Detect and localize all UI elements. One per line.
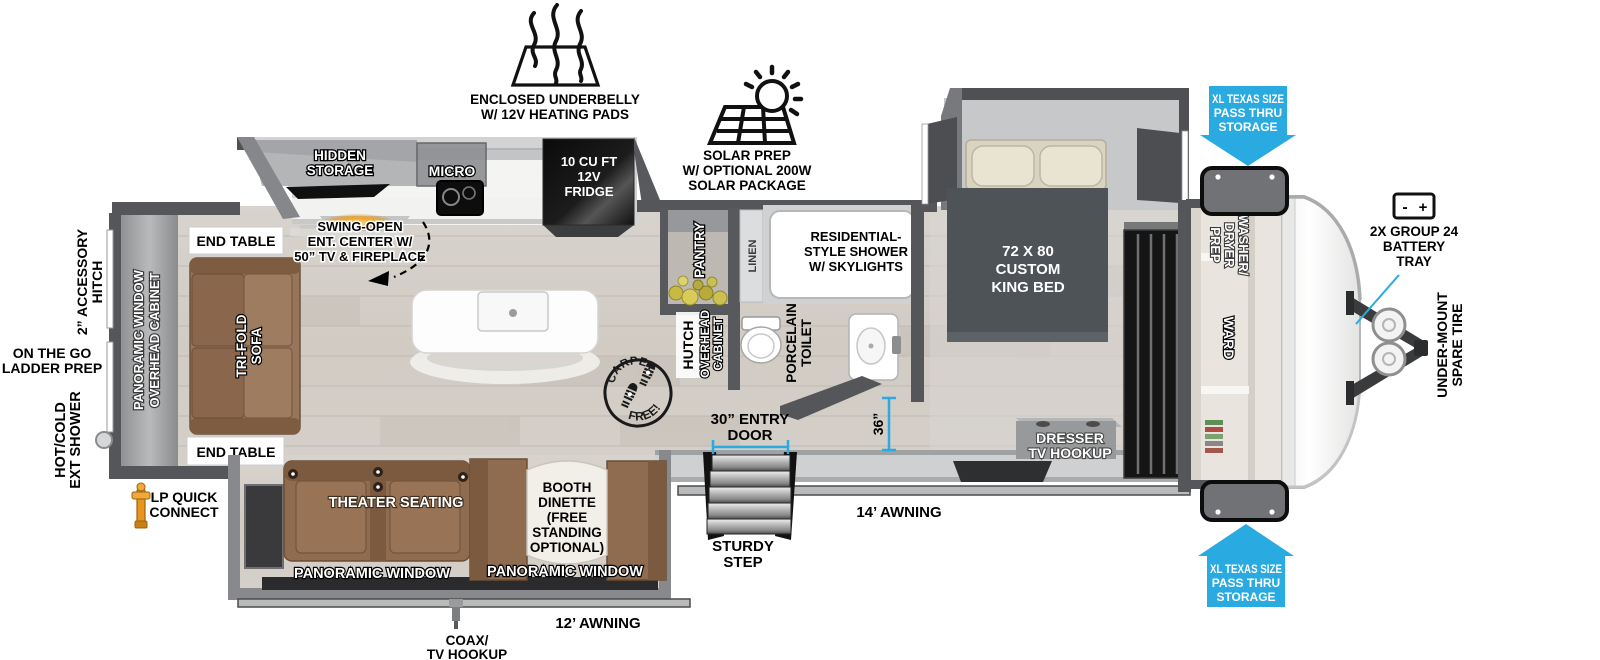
- svg-text:ON THE GO: ON THE GO: [13, 345, 92, 361]
- svg-text:DRESSER: DRESSER: [1036, 430, 1104, 446]
- svg-text:+: +: [1419, 199, 1428, 216]
- svg-text:OVERHEAD CABINET: OVERHEAD CABINET: [147, 272, 162, 407]
- svg-text:BOOTH: BOOTH: [543, 480, 592, 495]
- svg-text:STEP: STEP: [723, 554, 762, 571]
- svg-text:THEATER SEATING: THEATER SEATING: [329, 495, 464, 511]
- svg-text:STYLE SHOWER: STYLE SHOWER: [804, 244, 909, 259]
- svg-text:MICRO: MICRO: [429, 163, 476, 179]
- svg-text:STORAGE: STORAGE: [1218, 120, 1277, 134]
- svg-text:ENCLOSED UNDERBELLY: ENCLOSED UNDERBELLY: [470, 92, 640, 107]
- svg-text:PANORAMIC WINDOW: PANORAMIC WINDOW: [487, 564, 643, 580]
- svg-text:LP QUICK: LP QUICK: [151, 489, 218, 505]
- svg-text:OVERHEAD: OVERHEAD: [698, 310, 712, 378]
- svg-text:(FREE: (FREE: [547, 510, 588, 525]
- svg-text:PANORAMIC WINDOW: PANORAMIC WINDOW: [131, 269, 146, 410]
- svg-text:TRAY: TRAY: [1396, 254, 1432, 269]
- svg-text:XL TEXAS SIZE: XL TEXAS SIZE: [1212, 92, 1284, 106]
- svg-text:LADDER PREP: LADDER PREP: [2, 360, 102, 376]
- svg-text:OPTIONAL): OPTIONAL): [530, 540, 604, 555]
- svg-text:PANTRY: PANTRY: [691, 221, 707, 278]
- svg-text:30” ENTRY: 30” ENTRY: [711, 411, 790, 428]
- svg-text:TV HOOKUP: TV HOOKUP: [427, 647, 507, 660]
- svg-text:FRIDGE: FRIDGE: [564, 184, 613, 199]
- svg-text:SOLAR PREP: SOLAR PREP: [703, 148, 791, 163]
- svg-text:W/ 12V HEATING PADS: W/ 12V HEATING PADS: [481, 107, 629, 122]
- svg-text:2X GROUP 24: 2X GROUP 24: [1370, 224, 1459, 239]
- svg-text:COAX/: COAX/: [446, 633, 489, 648]
- svg-text:PANORAMIC WINDOW: PANORAMIC WINDOW: [294, 566, 450, 582]
- svg-text:PORCELAIN: PORCELAIN: [784, 303, 799, 383]
- svg-text:STORAGE: STORAGE: [1216, 590, 1275, 604]
- svg-text:STORAGE: STORAGE: [307, 163, 374, 178]
- svg-text:12V: 12V: [577, 169, 600, 184]
- svg-text:EXT SHOWER: EXT SHOWER: [68, 391, 84, 489]
- svg-text:W/ SKYLIGHTS: W/ SKYLIGHTS: [809, 259, 903, 274]
- svg-text:SOLAR PACKAGE: SOLAR PACKAGE: [688, 178, 806, 193]
- svg-text:TV HOOKUP: TV HOOKUP: [1028, 445, 1111, 461]
- svg-text:12’ AWNING: 12’ AWNING: [555, 615, 640, 632]
- svg-text:PASS THRU: PASS THRU: [1212, 576, 1280, 590]
- svg-text:TRI-FOLD: TRI-FOLD: [234, 314, 249, 377]
- svg-text:HITCH: HITCH: [89, 261, 105, 304]
- svg-text:PASS THRU: PASS THRU: [1214, 106, 1282, 120]
- svg-text:14’ AWNING: 14’ AWNING: [856, 504, 941, 521]
- svg-text:CUSTOM: CUSTOM: [996, 261, 1061, 278]
- svg-text:HIDDEN: HIDDEN: [314, 148, 366, 163]
- svg-text:DINETTE: DINETTE: [538, 495, 596, 510]
- svg-text:KING BED: KING BED: [991, 279, 1065, 296]
- svg-text:SOFA: SOFA: [249, 327, 264, 364]
- svg-text:STURDY: STURDY: [712, 538, 774, 555]
- svg-text:CABINET: CABINET: [711, 317, 725, 371]
- svg-text:CONNECT: CONNECT: [149, 504, 219, 520]
- svg-text:PREP: PREP: [1208, 227, 1223, 263]
- svg-text:DOOR: DOOR: [728, 427, 773, 444]
- svg-text:TOILET: TOILET: [799, 318, 814, 367]
- svg-text:10 CU FT: 10 CU FT: [561, 154, 617, 169]
- svg-text:STANDING: STANDING: [532, 525, 602, 540]
- svg-text:ENT. CENTER W/: ENT. CENTER W/: [308, 234, 413, 249]
- svg-text:DRYER: DRYER: [1222, 222, 1237, 268]
- svg-text:-: -: [1402, 199, 1407, 216]
- svg-text:HOT/COLD: HOT/COLD: [53, 402, 69, 478]
- svg-text:UNDER-MOUNT: UNDER-MOUNT: [1434, 292, 1450, 398]
- svg-text:WARD: WARD: [1221, 317, 1237, 360]
- svg-text:END TABLE: END TABLE: [196, 233, 275, 249]
- svg-text:HUTCH: HUTCH: [680, 321, 696, 370]
- svg-text:XL TEXAS SIZE: XL TEXAS SIZE: [1210, 562, 1282, 576]
- svg-text:WASHER/: WASHER/: [1236, 215, 1251, 276]
- svg-text:W/ OPTIONAL 200W: W/ OPTIONAL 200W: [683, 163, 812, 178]
- svg-text:SPARE TIRE: SPARE TIRE: [1449, 304, 1465, 387]
- svg-text:72 X 80: 72 X 80: [1002, 243, 1054, 260]
- svg-text:36”: 36”: [870, 413, 886, 436]
- svg-text:2” ACCESSORY: 2” ACCESSORY: [74, 228, 90, 335]
- svg-text:RESIDENTIAL-: RESIDENTIAL-: [811, 229, 902, 244]
- svg-text:LINEN: LINEN: [747, 239, 759, 272]
- svg-text:BATTERY: BATTERY: [1383, 239, 1445, 254]
- svg-text:50” TV & FIREPLACE: 50” TV & FIREPLACE: [294, 249, 426, 264]
- svg-text:SWING-OPEN: SWING-OPEN: [317, 219, 402, 234]
